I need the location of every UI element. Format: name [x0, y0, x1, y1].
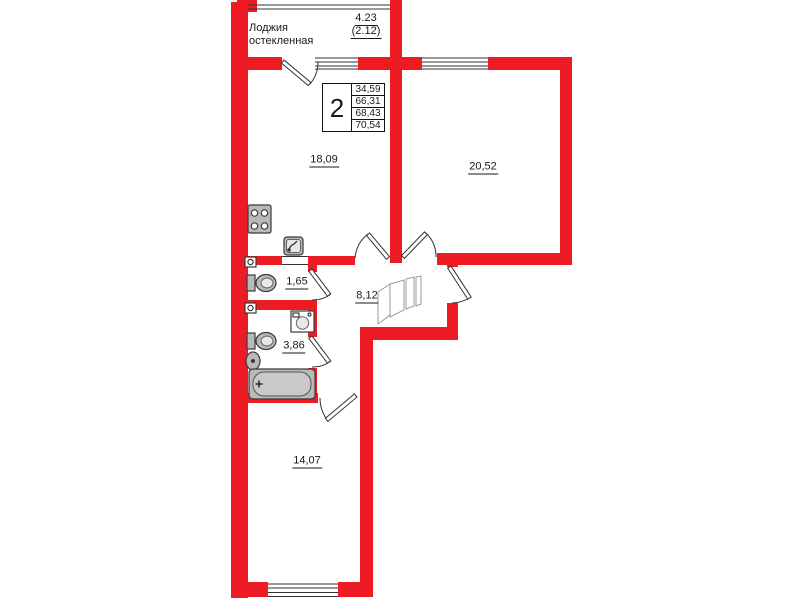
room-label-kitchen: 18,09 — [309, 154, 339, 167]
room-label-wc: 1,65 — [285, 276, 308, 289]
loggia-label-line1: Лоджия — [249, 22, 313, 35]
summary-box: 2 34,59 66,31 68,43 70,54 — [322, 83, 385, 132]
room-count: 2 — [323, 84, 352, 131]
floor-plan: Лоджия остекленная 4.23 (2.12) 2 34,59 6… — [0, 0, 800, 600]
bathtub-icon — [249, 369, 315, 399]
loggia-dimension-main: 4.23 — [354, 12, 377, 26]
wardrobe-sketch — [378, 276, 421, 324]
door-entry — [448, 266, 472, 303]
door-bedroom — [320, 394, 357, 421]
loggia-dimension-reduced: (2.12) — [351, 25, 382, 39]
window-kitchen — [315, 57, 358, 70]
window-bedroom — [268, 583, 338, 597]
vent-icon — [245, 257, 256, 267]
summary-area-total: 70,54 — [352, 120, 384, 131]
wall-top-right — [488, 57, 572, 70]
wall-bottom-right — [338, 582, 373, 597]
stove-icon — [248, 205, 271, 233]
washing-machine-icon — [291, 311, 314, 332]
wall-bottom-left — [231, 582, 268, 597]
summary-areas: 34,59 66,31 68,43 70,54 — [352, 84, 384, 131]
door-loggia — [281, 60, 318, 86]
room-label-right-room: 20,52 — [468, 161, 498, 174]
summary-area-living: 34,59 — [352, 84, 384, 96]
kitchen-sink-icon — [284, 237, 303, 255]
toilet-icon — [247, 275, 276, 292]
room-label-hallway: 8,12 — [355, 290, 378, 303]
wall-hall-bottom — [360, 327, 458, 340]
loggia-label: Лоджия остекленная — [249, 22, 313, 48]
room-label-bathroom: 3,86 — [282, 340, 305, 353]
loggia-glazing — [248, 5, 390, 9]
door-bathroom — [309, 336, 331, 367]
floor-plan-drawing — [0, 0, 800, 600]
shaft-gap — [282, 256, 308, 265]
toilet-icon-2 — [247, 333, 276, 350]
wall-right — [560, 57, 572, 265]
wall-kitchen-divider — [390, 57, 402, 263]
door-kitchen — [355, 233, 390, 259]
loggia-label-line2: остекленная — [249, 35, 313, 48]
room-label-bedroom: 14,07 — [292, 455, 322, 468]
door-room-right — [402, 232, 436, 259]
wall-loggia-corner — [237, 0, 257, 12]
door-wc — [309, 269, 331, 300]
wall-bedroom-right — [360, 327, 373, 597]
summary-area-2: 68,43 — [352, 108, 384, 120]
window-room-right — [422, 57, 488, 70]
wall-top-left — [231, 57, 282, 70]
wall-entry-pillar — [447, 253, 458, 267]
bath-sink-icon — [246, 352, 260, 370]
summary-area-1: 66,31 — [352, 96, 384, 108]
loggia-dimension: 4.23 (2.12) — [351, 12, 382, 38]
vent-icon-2 — [245, 303, 256, 313]
wall-entry-right — [447, 303, 458, 340]
